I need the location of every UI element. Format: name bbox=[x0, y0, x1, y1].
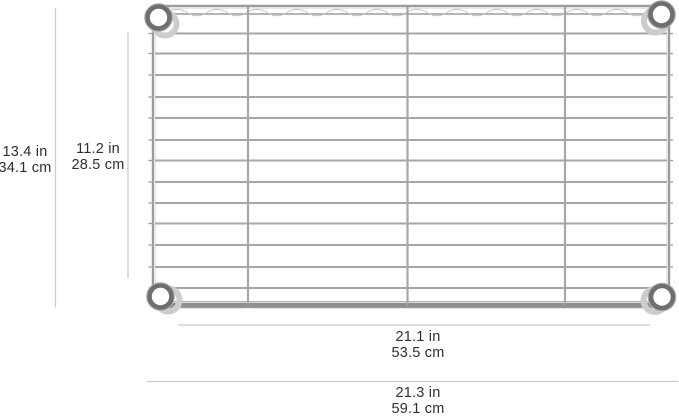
diagram-canvas bbox=[0, 0, 679, 416]
shelf-wire-grid bbox=[149, 7, 674, 305]
wire-shelf-top-view bbox=[145, 1, 676, 312]
outer-height-centimeters: 34.1 cm bbox=[0, 160, 51, 176]
inner-height-centimeters: 28.5 cm bbox=[72, 157, 125, 173]
outer-width-centimeters: 59.1 cm bbox=[392, 401, 445, 416]
inner-width-centimeters: 53.5 cm bbox=[392, 345, 445, 361]
inner-width-inches: 21.1 in bbox=[392, 329, 445, 345]
inner-height-inches: 11.2 in bbox=[72, 141, 125, 157]
product-dimension-diagram: 13.4 in 34.1 cm 11.2 in 28.5 cm 21.1 in … bbox=[0, 0, 679, 416]
label-inner-height: 11.2 in 28.5 cm bbox=[72, 141, 125, 173]
outer-width-inches: 21.3 in bbox=[392, 385, 445, 401]
label-outer-width: 21.3 in 59.1 cm bbox=[392, 385, 445, 416]
shelf-outer-frame bbox=[153, 6, 669, 307]
outer-height-inches: 13.4 in bbox=[0, 144, 51, 160]
label-outer-height: 13.4 in 34.1 cm bbox=[0, 144, 51, 176]
dimension-lines bbox=[56, 8, 679, 382]
label-inner-width: 21.1 in 53.5 cm bbox=[392, 329, 445, 361]
